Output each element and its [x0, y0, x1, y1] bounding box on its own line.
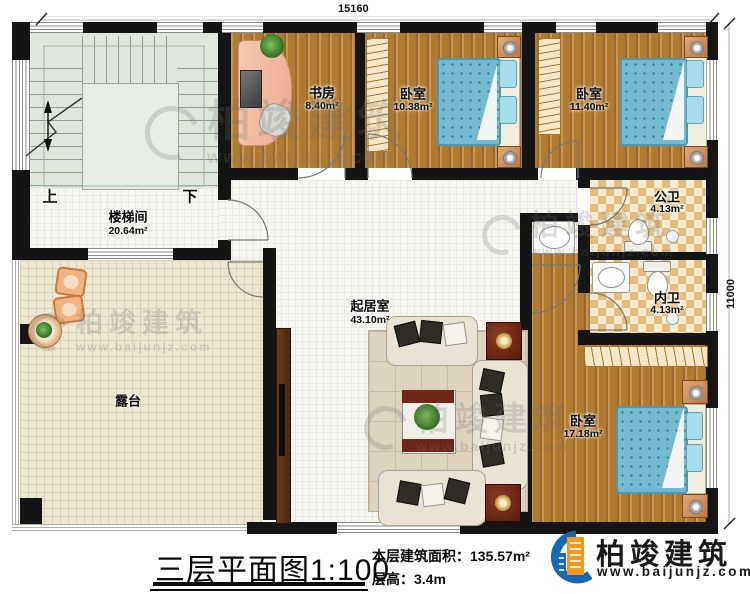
bedroom3-nightstand	[682, 494, 708, 518]
lamp-icon	[689, 500, 703, 514]
bedroom3-bed-sheet	[656, 408, 684, 488]
bedroom2-nightstand	[684, 146, 708, 168]
private-bath-sink-basin	[598, 267, 625, 288]
bedroom1-nightstand	[497, 146, 521, 168]
stair-treads-right	[177, 68, 218, 188]
terrace-chair	[54, 266, 88, 298]
stair-landing	[82, 83, 179, 190]
corridor-sink-basin	[539, 226, 570, 249]
side-table	[486, 322, 522, 360]
brand-logo-icon	[546, 528, 592, 588]
sofa-cushion	[396, 480, 421, 505]
bedroom1-bed-sheet	[473, 60, 497, 140]
lamp-icon	[690, 151, 704, 165]
bedroom2-nightstand	[684, 36, 708, 58]
bedroom1-pillow	[499, 96, 517, 124]
room-area-stairwell: 20.64m²	[108, 225, 147, 237]
coffee-table-shelf	[402, 439, 454, 452]
side-table	[485, 484, 521, 522]
sliding-door-terrace	[88, 248, 173, 260]
lamp-icon	[495, 495, 511, 511]
wall-segment	[596, 22, 658, 33]
sofa-cushion	[480, 417, 505, 442]
public-bath-toilet-bowl	[628, 219, 649, 245]
sofa-cushion	[480, 393, 504, 417]
floor-drain-icon	[666, 230, 679, 243]
floor-height-line: 层高：3.4m	[372, 569, 446, 589]
lamp-icon	[690, 41, 704, 55]
wall-segment	[263, 22, 357, 33]
wall-bath-divider	[590, 252, 706, 260]
stair-up-label: 上	[42, 186, 57, 207]
room-area-study: 8.40m²	[305, 100, 338, 112]
bedroom2-wardrobe	[538, 38, 561, 135]
bedroom2-pillow	[686, 60, 704, 88]
dimension-right: 11000	[725, 279, 737, 309]
wall-bath-west	[578, 225, 590, 293]
stair-treads-left	[30, 68, 82, 188]
bedroom1-wardrobe	[366, 38, 389, 152]
stair-treads-top	[82, 36, 177, 83]
room-label-living: 起居室	[350, 296, 389, 315]
wall-corridor	[345, 168, 368, 180]
lamp-icon	[503, 151, 517, 165]
study-computer	[240, 70, 262, 108]
bedroom3-pillow	[686, 412, 703, 440]
room-area-private-bath: 4.13m²	[650, 304, 683, 316]
sofa-cushion	[479, 368, 505, 394]
bedroom3-nightstand	[682, 380, 708, 404]
room-area-living: 43.10m²	[350, 314, 389, 326]
floor-plan-canvas: 15160 11000 楼梯间 20.64m² 书房 8.40m² 卧室 10.…	[0, 0, 750, 594]
window-stairwell	[12, 60, 30, 170]
tv-icon	[279, 384, 285, 456]
bedroom3-wardrobe	[584, 346, 708, 367]
wall-terrace-living	[263, 248, 276, 520]
wall-segment	[203, 22, 222, 33]
wall-bath-south	[578, 333, 706, 345]
floor-height-label: 层高：	[372, 571, 414, 587]
sofa-cushion	[443, 322, 468, 347]
wall-corridor	[576, 168, 718, 180]
room-label-bedroom1: 卧室	[400, 84, 426, 103]
floor-area-label: 本层建筑面积：	[372, 548, 470, 564]
bedroom2-bed-sheet	[658, 60, 684, 140]
wall-terrace-top	[173, 248, 220, 260]
sofa-cushion	[479, 442, 504, 467]
title-underline-thin	[150, 589, 368, 591]
study-plant	[260, 34, 284, 58]
room-label-terrace: 露台	[115, 391, 141, 410]
window-public-bath	[706, 218, 718, 254]
wall-segment	[522, 22, 556, 33]
lamp-icon	[503, 41, 517, 55]
coffee-table-shelf	[402, 390, 454, 403]
wall-bottom	[247, 522, 337, 534]
room-area-public-bath: 4.13m²	[650, 203, 683, 215]
bedroom1-pillow	[499, 60, 517, 88]
terrace-railing-left	[12, 260, 20, 524]
window-bedroom3	[706, 408, 718, 488]
brand-site: www.baijunjz.com	[597, 564, 750, 579]
floor-area-line: 本层建筑面积：135.57m²	[372, 546, 530, 566]
dimension-top: 15160	[338, 3, 369, 15]
room-label-bedroom2: 卧室	[576, 84, 602, 103]
bedroom3-pillow	[686, 444, 703, 472]
wall-bath-west	[578, 180, 590, 188]
sofa-cushion	[421, 483, 446, 508]
room-area-bedroom2: 11.40m²	[570, 101, 609, 113]
room-area-bedroom3: 17.18m²	[563, 428, 602, 440]
bedroom1-nightstand	[497, 36, 521, 58]
bedroom2-pillow	[686, 96, 704, 124]
window-private-bath	[706, 293, 718, 331]
floor-area-value: 135.57m²	[470, 548, 530, 564]
lamp-icon	[689, 386, 703, 400]
terrace-plant	[36, 322, 52, 338]
wall-segment	[83, 22, 157, 33]
wall-stair-east	[218, 33, 231, 200]
wall-bedroom-divider	[522, 33, 535, 168]
floor-height-value: 3.4m	[414, 571, 446, 587]
room-label-study: 书房	[309, 83, 335, 102]
title-underline	[153, 582, 365, 586]
wall-corridor	[412, 168, 538, 180]
window-bedroom2	[706, 60, 718, 140]
room-label-stairwell: 楼梯间	[108, 207, 147, 226]
wall-segment	[400, 22, 484, 33]
wall-corridor	[231, 168, 298, 180]
lamp-icon	[496, 333, 512, 349]
room-area-bedroom1: 10.38m²	[393, 101, 432, 113]
sofa-cushion	[419, 320, 443, 344]
coffee-table-plant	[414, 404, 440, 430]
wall-terrace-top	[30, 248, 88, 260]
room-label-bedroom3: 卧室	[570, 411, 596, 430]
stair-down-label: 下	[182, 186, 197, 207]
wall-study-bedroom	[355, 33, 365, 168]
terrace-railing-bottom	[12, 524, 247, 532]
